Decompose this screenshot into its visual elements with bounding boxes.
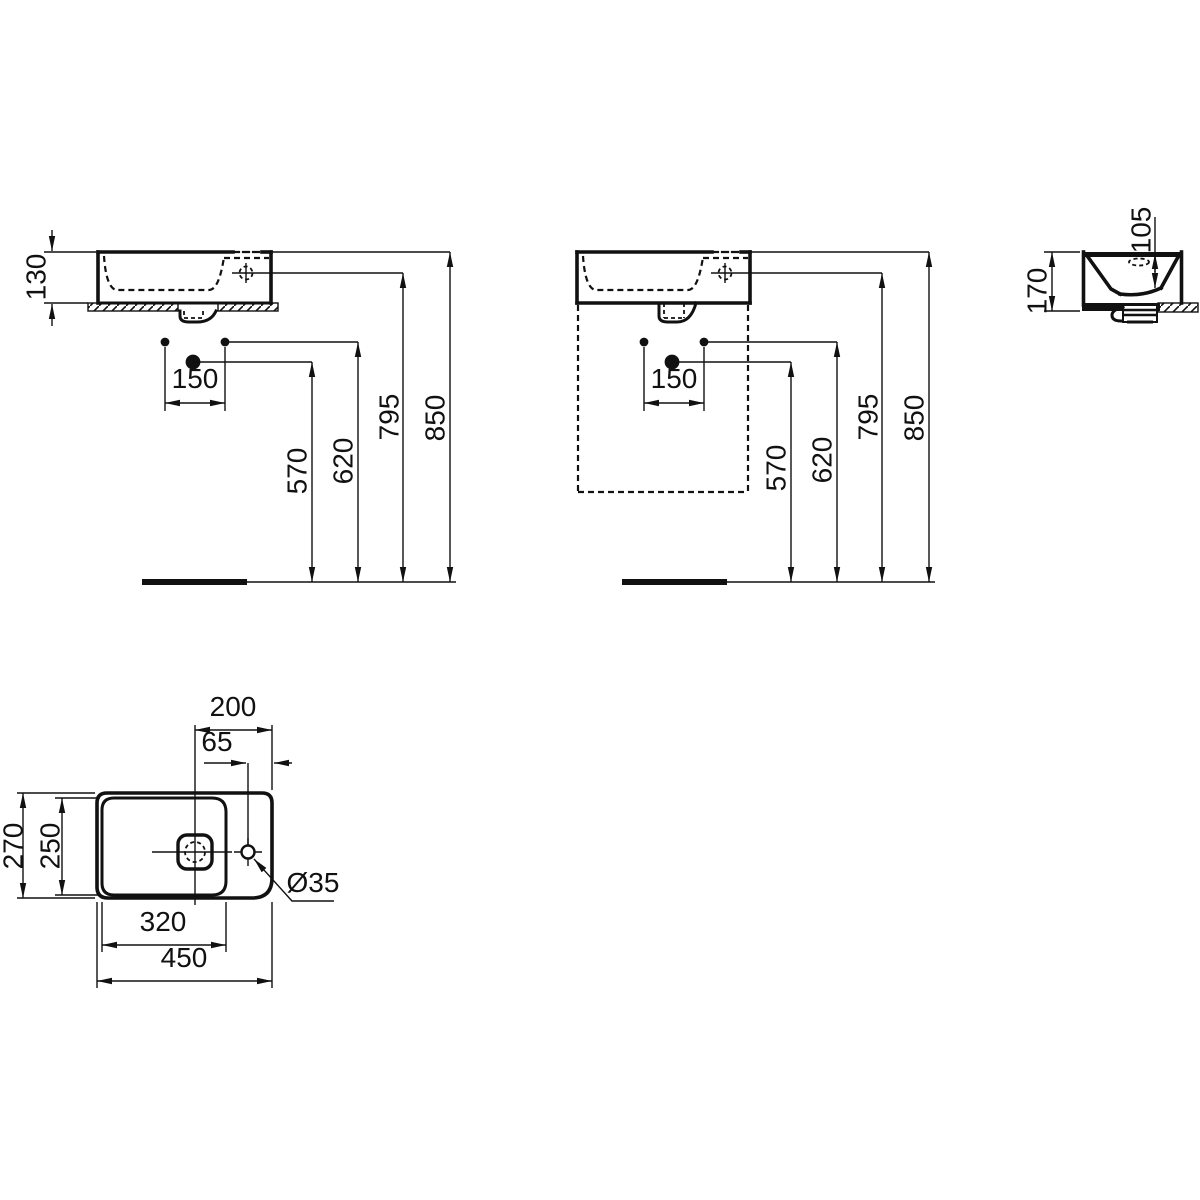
dimension-250: 250 bbox=[35, 798, 101, 895]
dim-label-620: 620 bbox=[807, 437, 838, 484]
overflow-hole bbox=[1129, 259, 1149, 266]
dim-label-850: 850 bbox=[420, 395, 451, 442]
dim-label-795: 795 bbox=[853, 394, 884, 441]
washbasin-technical-drawing: 130 150 570 620 795 850 bbox=[0, 0, 1200, 1200]
dimension-65: 65 bbox=[201, 726, 292, 763]
dimension-570: 570 bbox=[282, 362, 313, 582]
basin-section-profile bbox=[1082, 252, 1183, 307]
dim-label-65: 65 bbox=[201, 726, 232, 757]
waste-trap bbox=[180, 311, 216, 322]
dim-label-170: 170 bbox=[1022, 268, 1053, 315]
dimension-105: 105 bbox=[1126, 207, 1157, 288]
dim-label-570: 570 bbox=[282, 448, 313, 495]
plan-view: 200 65 270 250 320 450 bbox=[0, 691, 339, 988]
dimension-795: 795 bbox=[853, 273, 884, 582]
dimension-850: 850 bbox=[899, 252, 930, 582]
floor-line bbox=[142, 579, 456, 585]
dimension-795: 795 bbox=[374, 273, 405, 582]
dimension-570: 570 bbox=[761, 362, 792, 582]
front-view-with-furniture: 150 570 620 795 850 bbox=[577, 252, 935, 585]
dim-label-850: 850 bbox=[899, 395, 930, 442]
dim-label-450: 450 bbox=[161, 942, 208, 973]
dim-label-150: 150 bbox=[651, 363, 698, 394]
dim-label-270: 270 bbox=[0, 823, 29, 870]
drain-waste-section bbox=[1112, 305, 1157, 322]
fixing-hole-dot bbox=[161, 338, 170, 347]
dim-label-570: 570 bbox=[761, 445, 792, 492]
dim-label-795: 795 bbox=[374, 394, 405, 441]
fixing-hole-dot bbox=[640, 338, 649, 347]
wall-section-hatch bbox=[1158, 303, 1198, 312]
dim-label-dia35: Ø35 bbox=[287, 867, 340, 898]
dim-label-150: 150 bbox=[172, 363, 219, 394]
dimension-620: 620 bbox=[807, 342, 838, 582]
side-section-view: 105 170 bbox=[1022, 207, 1199, 322]
dim-label-200: 200 bbox=[210, 691, 257, 722]
dimension-620: 620 bbox=[328, 342, 359, 582]
dim-label-320: 320 bbox=[140, 906, 187, 937]
dim-label-250: 250 bbox=[35, 823, 66, 870]
dim-label-130: 130 bbox=[21, 254, 52, 301]
dimension-170: 170 bbox=[1022, 252, 1081, 314]
front-view-wall-mounted: 130 150 570 620 795 850 bbox=[21, 230, 457, 585]
waste-trap bbox=[659, 303, 696, 322]
basin-outline bbox=[577, 252, 750, 303]
dimension-130: 130 bbox=[21, 230, 97, 326]
floor-line bbox=[622, 579, 935, 585]
dim-label-620: 620 bbox=[328, 438, 359, 485]
dimension-850: 850 bbox=[420, 252, 451, 582]
dim-label-105: 105 bbox=[1126, 207, 1157, 254]
drain-outline bbox=[152, 835, 232, 869]
technical-drawing-page: 130 150 570 620 795 850 bbox=[0, 0, 1200, 1200]
furniture-cabinet-outline bbox=[578, 305, 748, 492]
bowl-inner-outline bbox=[102, 798, 226, 895]
dimension-200: 200 bbox=[195, 691, 272, 730]
basin-outline bbox=[98, 252, 271, 303]
